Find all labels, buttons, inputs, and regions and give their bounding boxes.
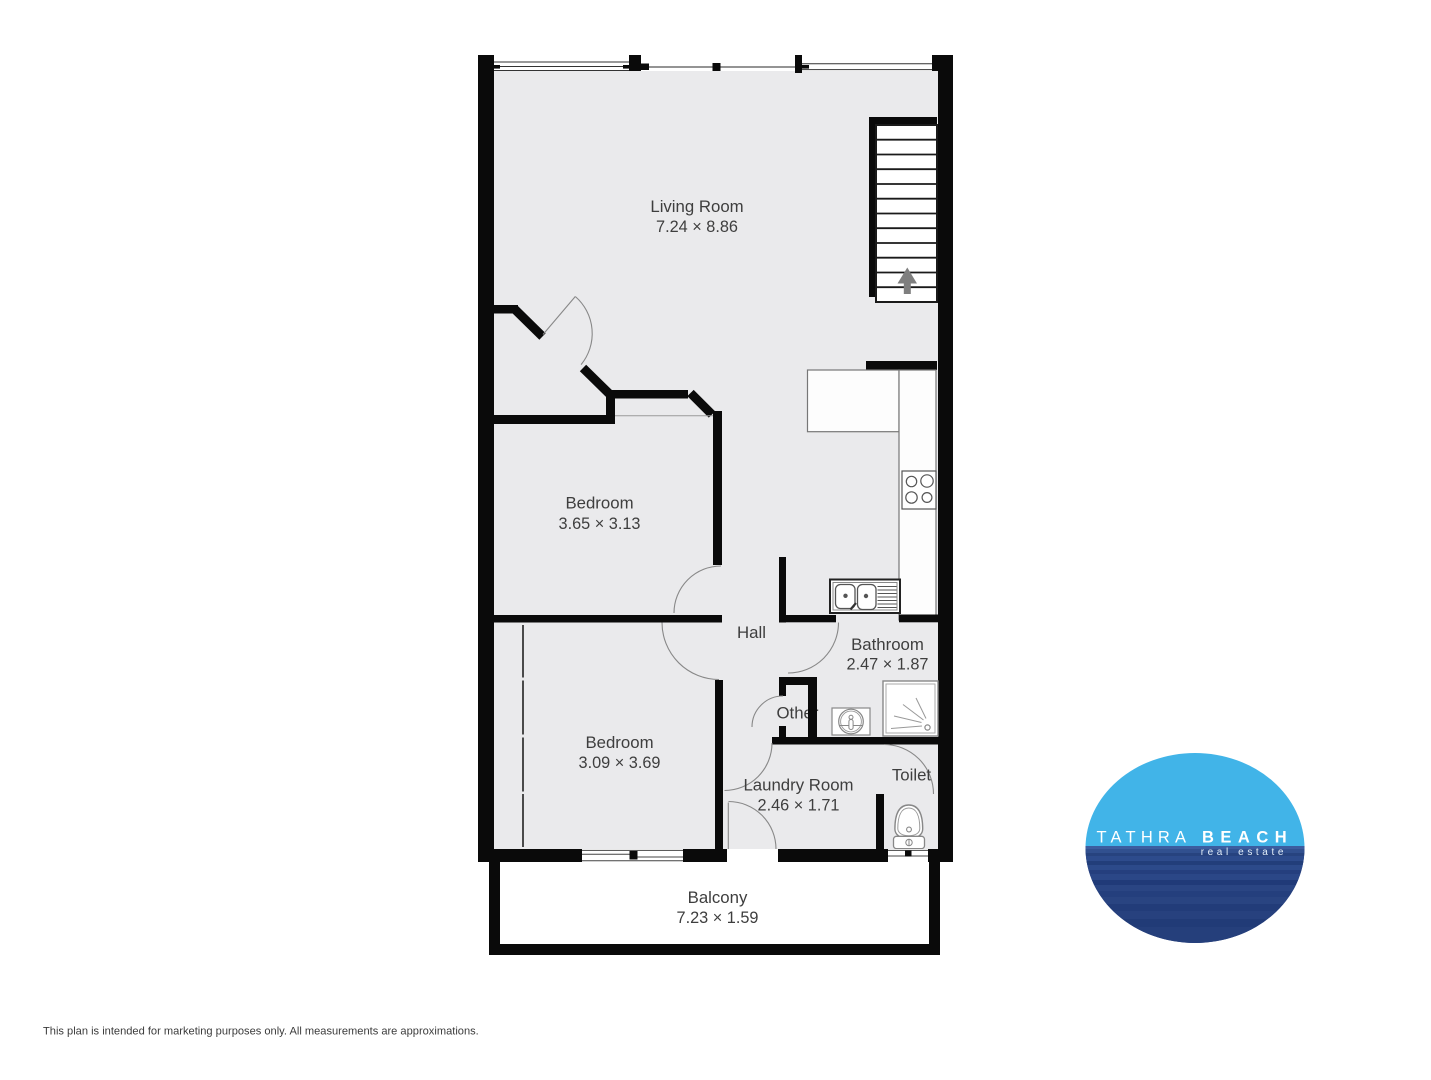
svg-text:2.46 × 1.71: 2.46 × 1.71 <box>758 797 840 815</box>
svg-text:2.47 × 1.87: 2.47 × 1.87 <box>847 656 929 674</box>
svg-text:real estate: real estate <box>1201 847 1287 858</box>
svg-text:Bedroom: Bedroom <box>565 494 633 513</box>
svg-text:This plan is intended for mark: This plan is intended for marketing purp… <box>43 1026 479 1038</box>
svg-text:Toilet: Toilet <box>892 766 932 785</box>
svg-text:Bathroom: Bathroom <box>851 635 924 654</box>
svg-text:Hall: Hall <box>737 623 766 642</box>
svg-text:7.24 × 8.86: 7.24 × 8.86 <box>656 218 738 236</box>
svg-text:3.09 × 3.69: 3.09 × 3.69 <box>579 754 661 772</box>
svg-text:TATHRA: TATHRA <box>1097 829 1192 847</box>
svg-text:BEACH: BEACH <box>1202 829 1293 847</box>
svg-text:Bedroom: Bedroom <box>585 733 653 752</box>
svg-text:7.23 × 1.59: 7.23 × 1.59 <box>677 909 759 927</box>
svg-text:Laundry Room: Laundry Room <box>743 776 853 795</box>
svg-text:Balcony: Balcony <box>688 888 748 907</box>
svg-text:Living Room: Living Room <box>650 197 743 216</box>
svg-text:3.65 × 3.13: 3.65 × 3.13 <box>559 515 641 533</box>
